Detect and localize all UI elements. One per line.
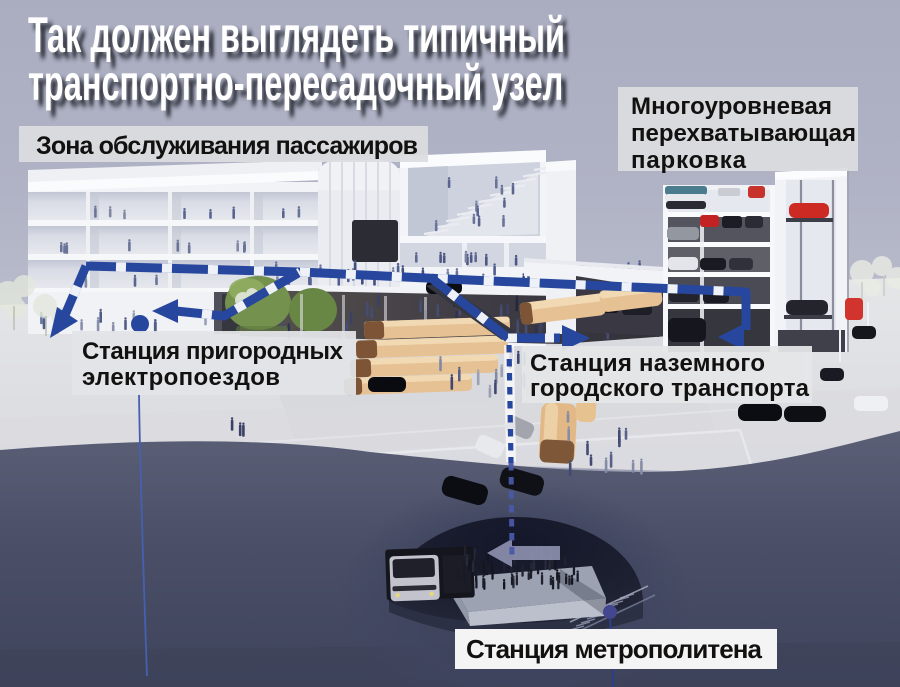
svg-text:парковка: парковка	[631, 147, 747, 174]
svg-text:Станция пригородных: Станция пригородных	[82, 338, 344, 365]
svg-text:электропоездов: электропоездов	[82, 364, 280, 391]
svg-text:транспортно-пересадочный узел: транспортно-пересадочный узел	[28, 55, 563, 111]
svg-text:Станция наземного: Станция наземного	[530, 350, 765, 377]
svg-text:Многоуровневая: Многоуровневая	[631, 93, 832, 120]
svg-text:Зона обслуживания пассажиров: Зона обслуживания пассажиров	[36, 132, 418, 160]
svg-text:городского транспорта: городского транспорта	[530, 375, 810, 402]
svg-text:Станция метрополитена: Станция метрополитена	[466, 634, 763, 664]
svg-text:перехватывающая: перехватывающая	[631, 120, 856, 147]
